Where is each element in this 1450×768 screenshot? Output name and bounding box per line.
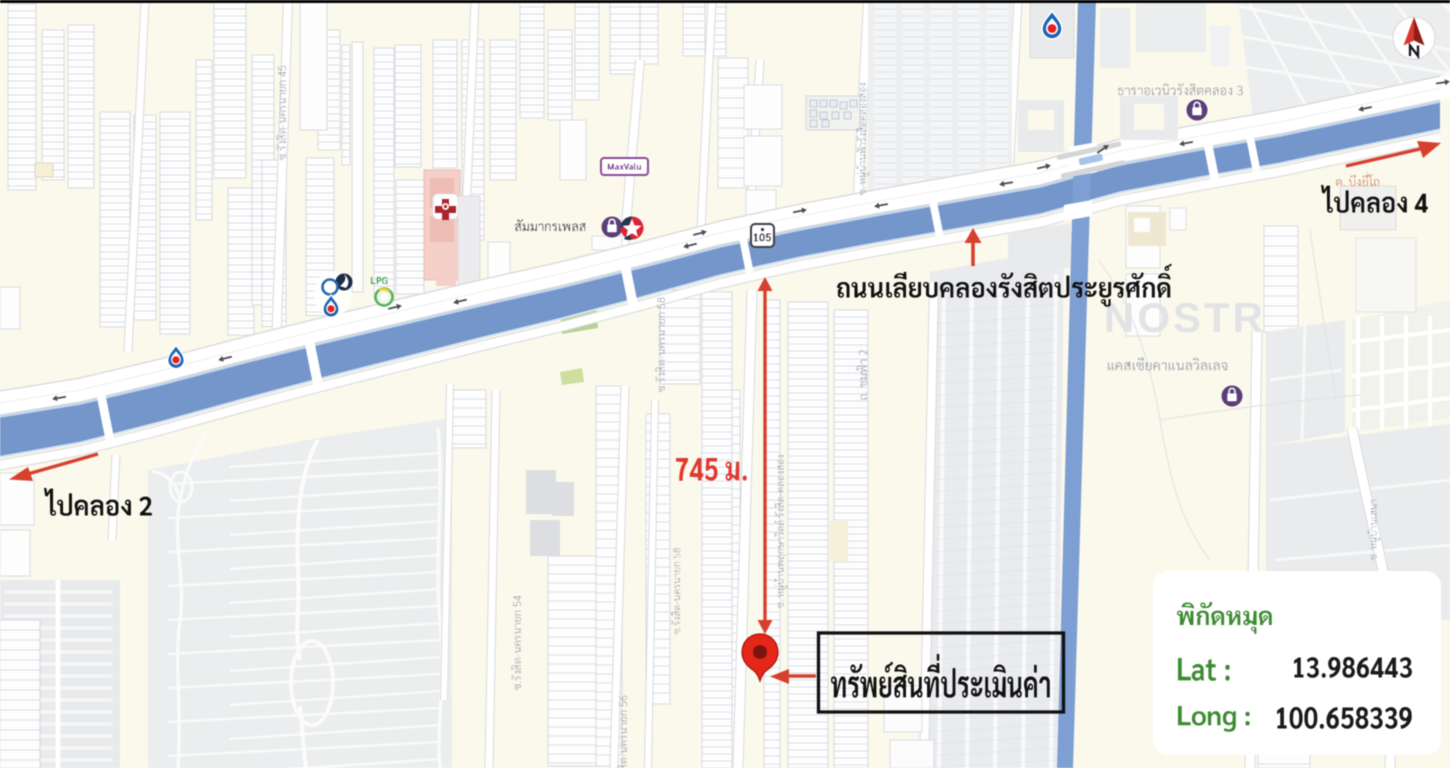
svg-text:NOSTR: NOSTR	[1104, 294, 1266, 341]
